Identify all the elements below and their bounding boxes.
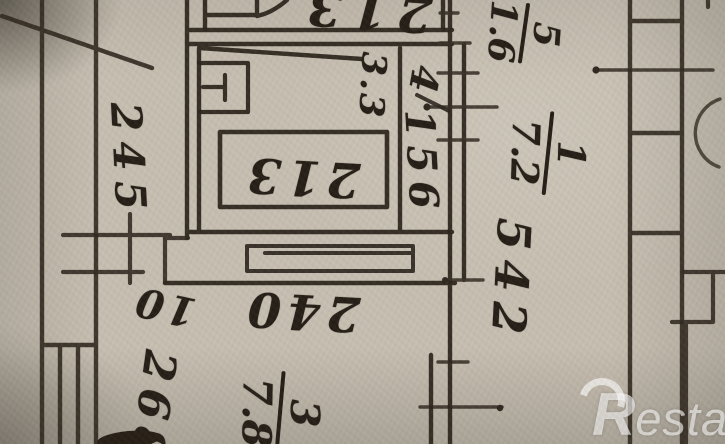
- hash-walls: [63, 214, 188, 283]
- wc-room-area: 1.6: [482, 0, 522, 64]
- window-sill: [247, 246, 413, 271]
- room1-area: 7.2: [505, 118, 545, 185]
- sink-symbol: [199, 63, 248, 112]
- dim-label-10: 10: [129, 280, 200, 332]
- room3-area: 7.8: [235, 377, 276, 444]
- restate-logo-icon: R: [592, 392, 635, 440]
- room-number-top: 213: [296, 0, 434, 40]
- room-label-1: 1 7.2: [505, 110, 592, 196]
- dim-label-240: 240: [241, 284, 362, 338]
- room-label-3: 3 7.8: [235, 370, 324, 444]
- room-label-wc: 5 1.6: [482, 0, 566, 67]
- door-swing-arc: [695, 99, 720, 167]
- pen-dot: [592, 66, 599, 73]
- watermark-text: estate: [635, 399, 725, 438]
- pen-dot: [497, 405, 503, 411]
- room1-number: 1: [552, 140, 591, 168]
- room-number-bathtub: 213: [241, 150, 362, 204]
- dim-label-542: 542: [485, 217, 538, 345]
- restate-watermark: R estate: [592, 392, 725, 440]
- area-label-bathroom: 3.3: [353, 51, 391, 121]
- floor-plan-photo: 213 5 1.6 3.3 4 156 1 7.2 542 245 213 10…: [0, 0, 725, 444]
- dim-label-245: 245: [104, 101, 152, 221]
- wc-room-number: 5: [527, 21, 565, 49]
- room3-number: 3: [284, 399, 324, 428]
- pen-dot: [442, 277, 448, 283]
- dim-label-156: 156: [398, 108, 444, 217]
- ladder-wall: [630, 0, 682, 444]
